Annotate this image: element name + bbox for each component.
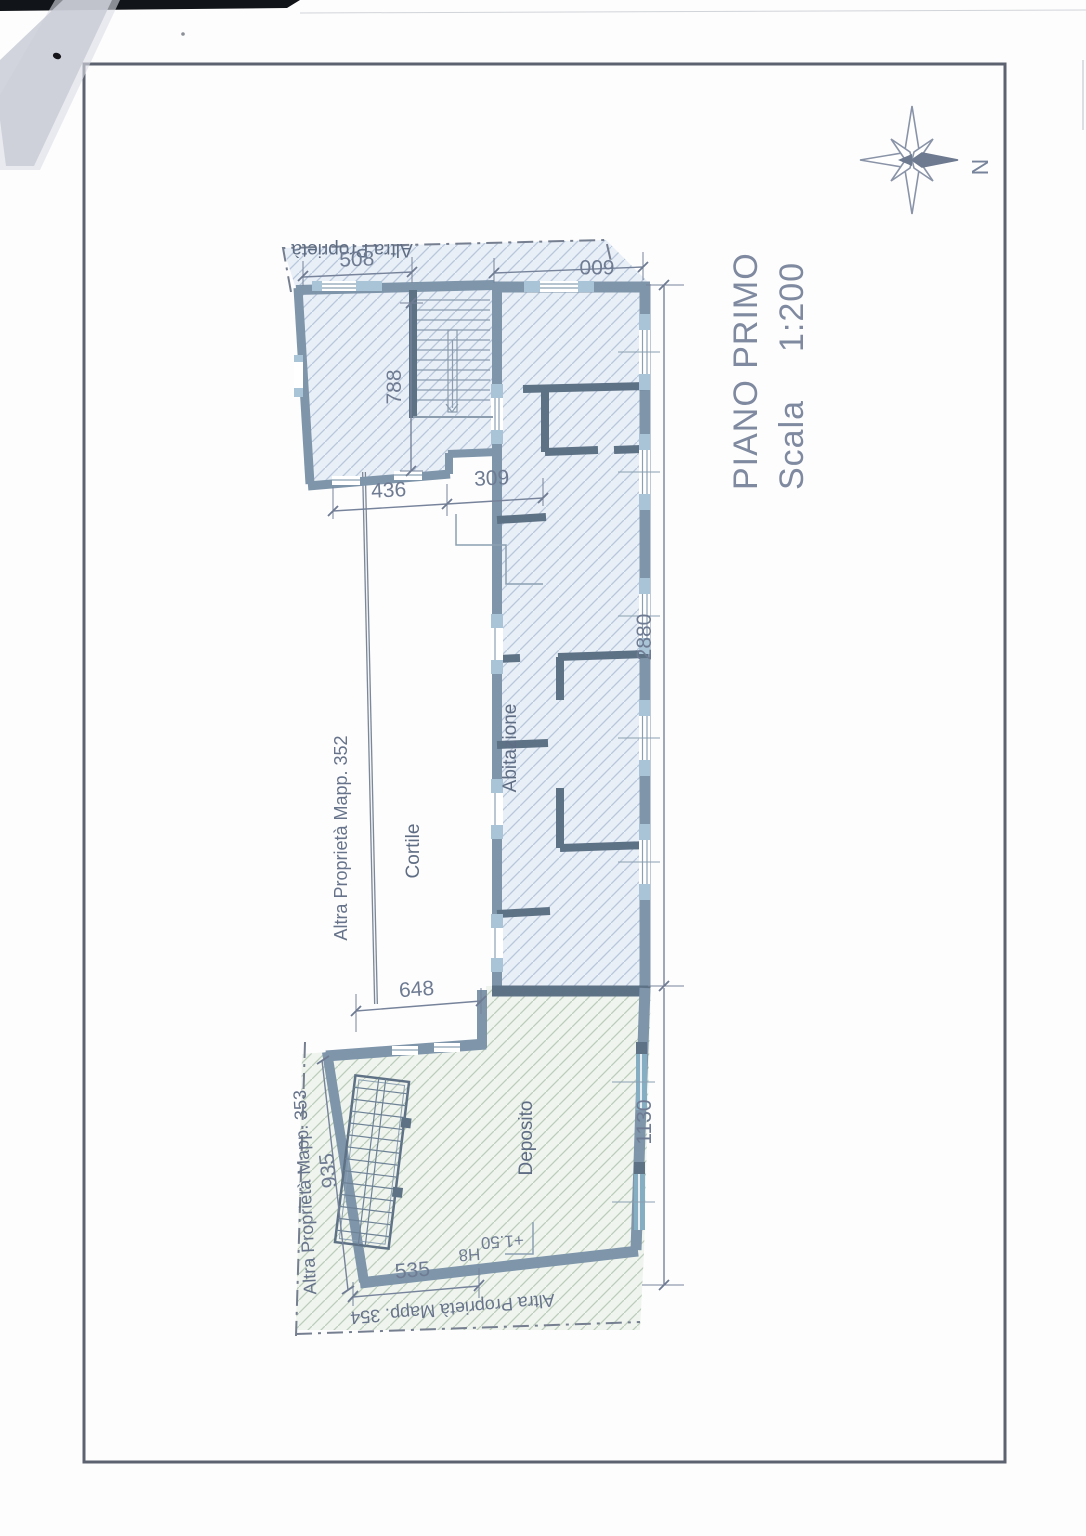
dim-935-label: 935 (315, 1152, 342, 1189)
dim-788-label: 788 (383, 369, 406, 404)
dim-309-label: 309 (474, 466, 510, 491)
dim-648-label: 648 (398, 977, 435, 1002)
dim-1130-label: 1130 (633, 1099, 656, 1144)
label-deposito: Deposito (516, 1101, 537, 1176)
scale-label: Scala (773, 400, 811, 490)
dim-508-label: 508 (339, 247, 375, 271)
dim-436-label: 436 (371, 478, 407, 503)
label-cortile: Cortile (403, 824, 424, 879)
compass-rose: N (860, 106, 993, 214)
scale-value: 1:200 (773, 262, 811, 352)
level-annotation-secondary: H8 (458, 1244, 481, 1264)
label-mapp-352: Altra Proprietà Mapp. 352 (331, 735, 351, 940)
dim-600-label: 600 (579, 255, 614, 278)
scan-artifacts (0, 0, 1086, 170)
plan-title: PIANO PRIMO (727, 252, 765, 490)
floorplan-drawing: Altra Proprietà 508 600 788 436 309 2880… (0, 0, 1086, 1536)
level-annotation: +1.50 (480, 1231, 524, 1253)
boundary-line-352 (364, 472, 376, 1004)
dim-2880-label: 2880 (633, 614, 656, 661)
label-abitazione: Abitazione (500, 704, 521, 793)
compass-north-label: N (967, 159, 993, 176)
scanned-floorplan-page: Altra Proprietà 508 600 788 436 309 2880… (0, 0, 1086, 1536)
title-block: PIANO PRIMO Scala 1:200 (727, 252, 811, 490)
dim-535-label: 535 (394, 1258, 431, 1284)
